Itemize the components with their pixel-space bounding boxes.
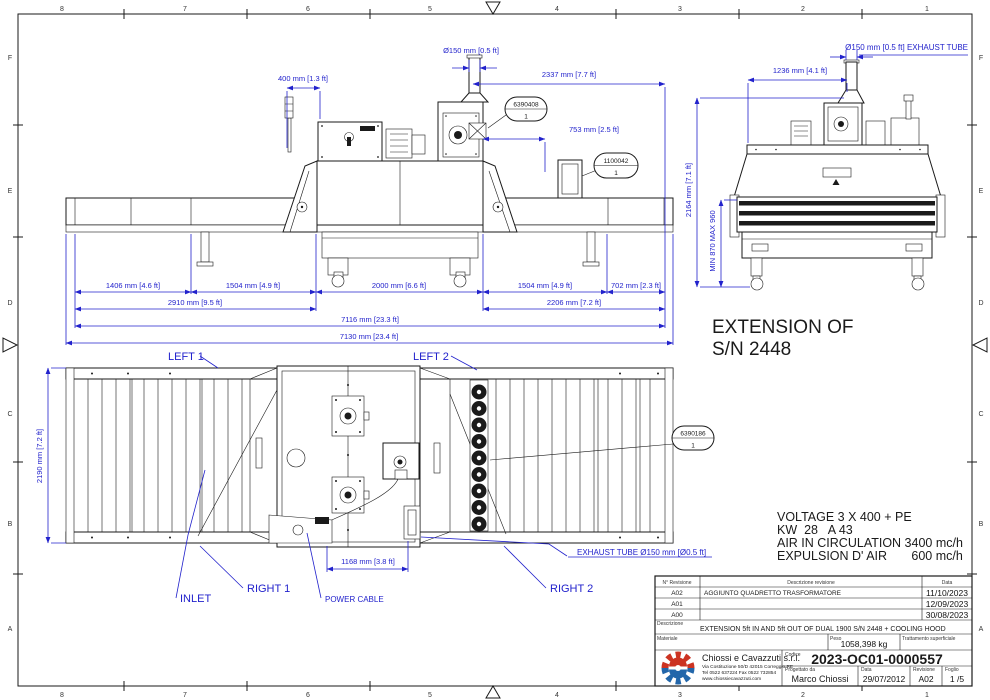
- dim-2337: 2337 mm [7.7 ft]: [542, 70, 596, 79]
- materiale-label: Materiale: [657, 636, 678, 642]
- balloon-qty: 1: [614, 170, 618, 177]
- voltage-note: VOLTAGE 3 X 400 + PE: [777, 510, 912, 524]
- extension-of-text: EXTENSION OF: [712, 317, 853, 338]
- grid-row-label: E: [8, 188, 13, 195]
- peso-value: 1058,398 kg: [841, 639, 888, 649]
- balloon-number: 1100042: [604, 158, 629, 165]
- rev-no: A00: [671, 612, 683, 619]
- rev-header-date: Data: [942, 580, 953, 586]
- title-block: N° Revisione Descrizione revisione Data …: [655, 576, 972, 686]
- label-right-2: RIGHT 2: [550, 583, 593, 595]
- balloon-1100042: 1100042 1: [582, 153, 638, 178]
- dim-7130: 7130 mm [23.4 ft]: [340, 332, 398, 341]
- dim-2206: 2206 mm [7.2 ft]: [547, 298, 601, 307]
- company-address: Via Costituzione 50/D 42015 Correggio RE: [702, 664, 793, 670]
- grid-col-label: 6: [306, 692, 310, 699]
- grid-row-label: C: [978, 411, 983, 418]
- grid-row-label: D: [7, 300, 12, 307]
- grid-row-label: A: [8, 626, 13, 633]
- dim-7116: 7116 mm [23.3 ft]: [341, 315, 399, 324]
- side-elevation-view: [66, 55, 673, 287]
- descrizione-label: Descrizione: [657, 621, 683, 627]
- cooling-fans: [472, 385, 487, 532]
- front-view: [730, 60, 945, 290]
- label-left-1: LEFT 1: [168, 351, 204, 363]
- foglio-label: Foglio: [945, 667, 959, 673]
- foglio-value: 1 /5: [950, 674, 964, 684]
- label-right-1: RIGHT 1: [247, 583, 290, 595]
- air-circulation-note: AIR IN CIRCULATION 3400 mc/h: [777, 536, 963, 550]
- progettato-value: Marco Chiossi: [791, 674, 848, 684]
- balloon-number: 6390408: [513, 102, 539, 109]
- dim-2910: 2910 mm [9.5 ft]: [168, 298, 222, 307]
- data-value: 29/07/2012: [863, 674, 906, 684]
- plan-view: [66, 366, 673, 547]
- company-phone: Tel 0522 637224 Fax 0522 732854: [702, 670, 776, 676]
- rev-date: 12/09/2023: [926, 599, 969, 609]
- grid-col-label: 7: [183, 692, 187, 699]
- dim-400: 400 mm [1.3 ft]: [278, 74, 328, 83]
- label-exhaust-tube: EXHAUST TUBE Ø150 mm [Ø0.5 ft]: [577, 548, 706, 557]
- revisione-label: Revisione: [913, 667, 935, 673]
- expulsion-note: EXPULSION D' AIR 600 mc/h: [777, 549, 963, 563]
- revisione-value: A02: [918, 674, 933, 684]
- balloon-qty: 1: [524, 114, 528, 121]
- progettato-label: Progettato da: [785, 667, 815, 673]
- grid-col-label: 8: [60, 692, 64, 699]
- grid-col-label: 5: [428, 692, 432, 699]
- dim-1504a: 1504 mm [4.9 ft]: [226, 281, 280, 290]
- grid-col-label: 1: [925, 692, 929, 699]
- descrizione-value: EXTENSION 5ft IN AND 5ft OUT OF DUAL 190…: [700, 626, 946, 633]
- rev-date: 30/08/2023: [926, 610, 969, 620]
- grid-row-label: F: [8, 55, 12, 62]
- dim-753: 753 mm [2.5 ft]: [569, 125, 619, 134]
- grid-row-label: A: [979, 626, 984, 633]
- balloon-number: 6390186: [680, 431, 706, 438]
- grid-row-label: C: [7, 411, 12, 418]
- dim-2190: 2190 mm [7.2 ft]: [35, 429, 44, 483]
- drawing-code: 2023-OC01-0000557: [811, 651, 943, 667]
- grid-col-label: 3: [678, 6, 682, 13]
- plan-view-labels: LEFT 1 LEFT 2 INLET RIGHT 1 POWER CABLE …: [168, 351, 712, 605]
- drawing-sheet: 8 7 6 5 4 3 2 1 8 7 6 5 4 3 2 1 F E D C …: [0, 0, 990, 700]
- rev-header-no: N° Revisione: [663, 580, 692, 586]
- extension-note: EXTENSION OF S/N 2448: [712, 317, 853, 360]
- codice-label: Codice: [785, 652, 801, 658]
- serial-number-text: S/N 2448: [712, 339, 791, 360]
- rev-date: 11/10/2023: [926, 588, 968, 598]
- kw-note: KW 28 A 43: [777, 523, 853, 537]
- dim-d150: Ø150 mm [0.5 ft]: [443, 46, 499, 55]
- dim-1168: 1168 mm [3.8 ft]: [341, 557, 395, 566]
- dim-702: 702 mm [2.3 ft]: [611, 281, 661, 290]
- balloon-6390186: 6390186 1: [490, 426, 714, 460]
- grid-col-label: 4: [555, 692, 559, 699]
- company-web: www.chiossiecavazzuti.com: [702, 676, 761, 682]
- engineering-drawing: 8 7 6 5 4 3 2 1 8 7 6 5 4 3 2 1 F E D C …: [0, 0, 990, 700]
- dim-exhaust-tube: Ø150 mm [0.5 ft] EXHAUST TUBE: [845, 43, 968, 52]
- grid-col-label: 1: [925, 6, 929, 13]
- grid-col-label: 6: [306, 6, 310, 13]
- data-label: Data: [861, 667, 872, 673]
- grid-col-label: 5: [428, 6, 432, 13]
- rev-no: A01: [671, 601, 683, 608]
- label-power-cable: POWER CABLE: [325, 595, 384, 604]
- grid-col-label: 7: [183, 6, 187, 13]
- grid-row-label: E: [979, 188, 984, 195]
- label-inlet: INLET: [180, 593, 211, 605]
- electrical-notes: VOLTAGE 3 X 400 + PE KW 28 A 43 AIR IN C…: [777, 510, 963, 563]
- rev-desc: AGGIUNTO QUADRETTO TRASFORMATORE: [704, 590, 842, 597]
- dim-1406: 1406 mm [4.6 ft]: [106, 281, 160, 290]
- grid-col-label: 3: [678, 692, 682, 699]
- dim-1504b: 1504 mm [4.9 ft]: [518, 281, 572, 290]
- grid-col-label: 2: [801, 692, 805, 699]
- dim-2000: 2000 mm [6.6 ft]: [372, 281, 426, 290]
- grid-col-label: 2: [801, 6, 805, 13]
- grid-row-label: D: [978, 300, 983, 307]
- dim-2164: 2164 mm [7.1 ft]: [684, 163, 693, 217]
- dim-1236: 1236 mm [4.1 ft]: [773, 66, 827, 75]
- balloon-qty: 1: [691, 443, 695, 450]
- grid-row-label: B: [8, 521, 13, 528]
- grid-col-label: 4: [555, 6, 559, 13]
- trattamento-label: Trattamento superficiale: [902, 636, 956, 642]
- grid-col-label: 8: [60, 6, 64, 13]
- balloon-6390408: 6390408 1: [488, 97, 547, 128]
- grid-row-label: B: [979, 521, 984, 528]
- dim-min-max: MIN 870 MAX 960: [708, 210, 717, 271]
- label-left-2: LEFT 2: [413, 351, 449, 363]
- grid-row-label: F: [979, 55, 983, 62]
- rev-no: A02: [671, 590, 683, 597]
- rev-header-desc: Descrizione revisione: [787, 580, 835, 586]
